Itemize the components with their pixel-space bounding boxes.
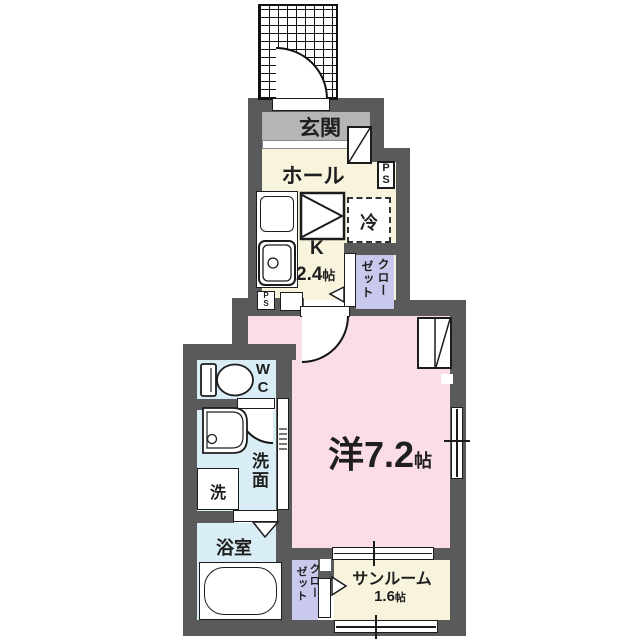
kitchen-size-label: 2.4帖	[296, 264, 335, 286]
bathtub	[204, 567, 277, 615]
entrance-door-leaf	[272, 98, 330, 111]
sunroom-window-bottom-midline	[336, 626, 436, 628]
closet-lower-label-left: ゼット	[293, 566, 309, 602]
wall-left-lower	[183, 344, 197, 636]
sunroom-size-label: 1.6帖	[334, 588, 446, 605]
washbasin	[199, 407, 249, 454]
washroom-label: 洗面	[246, 452, 271, 490]
wall-washroom-bath	[197, 511, 234, 523]
bathroom-door-arrow-icon	[252, 521, 280, 539]
kitchen-counter-top	[260, 196, 294, 232]
closet-upper-door	[344, 253, 356, 307]
sunroom-window-top-tick	[373, 541, 375, 566]
closet-upper-label-left: ゼット	[359, 260, 376, 299]
sunroom-window-top-midline	[334, 553, 432, 555]
wall-cabinet	[417, 317, 452, 369]
kitchen-sink	[258, 240, 296, 286]
sunroom-label: サンルーム	[334, 565, 450, 589]
hall-label: ホール	[258, 160, 368, 190]
wall-sunroom-top-right	[434, 548, 466, 560]
sunroom-window-bottom-tick	[375, 615, 377, 639]
toilet	[199, 361, 257, 399]
bathroom-label: 浴室	[216, 534, 252, 560]
sliding-door-track	[279, 428, 287, 452]
stove-symbol	[300, 192, 345, 240]
fridge-label: 冷	[347, 209, 391, 235]
washing-machine-label: 洗	[197, 479, 239, 503]
wc-label: WC	[252, 361, 274, 397]
wall-notch-cabinet	[441, 374, 453, 384]
floor-plan: PS 冷 PS クロー ゼット WC	[0, 0, 640, 640]
closet-upper-arrow-icon	[328, 286, 345, 303]
wall-kitchen-right	[396, 148, 410, 316]
sunroom-door-leaf	[318, 578, 331, 618]
main-room-label: 洋7.2帖	[310, 426, 450, 478]
kitchen-label: K	[310, 238, 324, 260]
closet-upper-label-right: クロー	[375, 258, 392, 297]
ps-right-label: PS	[377, 162, 395, 186]
right-window-midline	[456, 409, 458, 477]
sliding-door	[277, 398, 289, 510]
genkan-label: 玄関	[280, 112, 360, 142]
ps-left-label: PS	[257, 292, 275, 308]
